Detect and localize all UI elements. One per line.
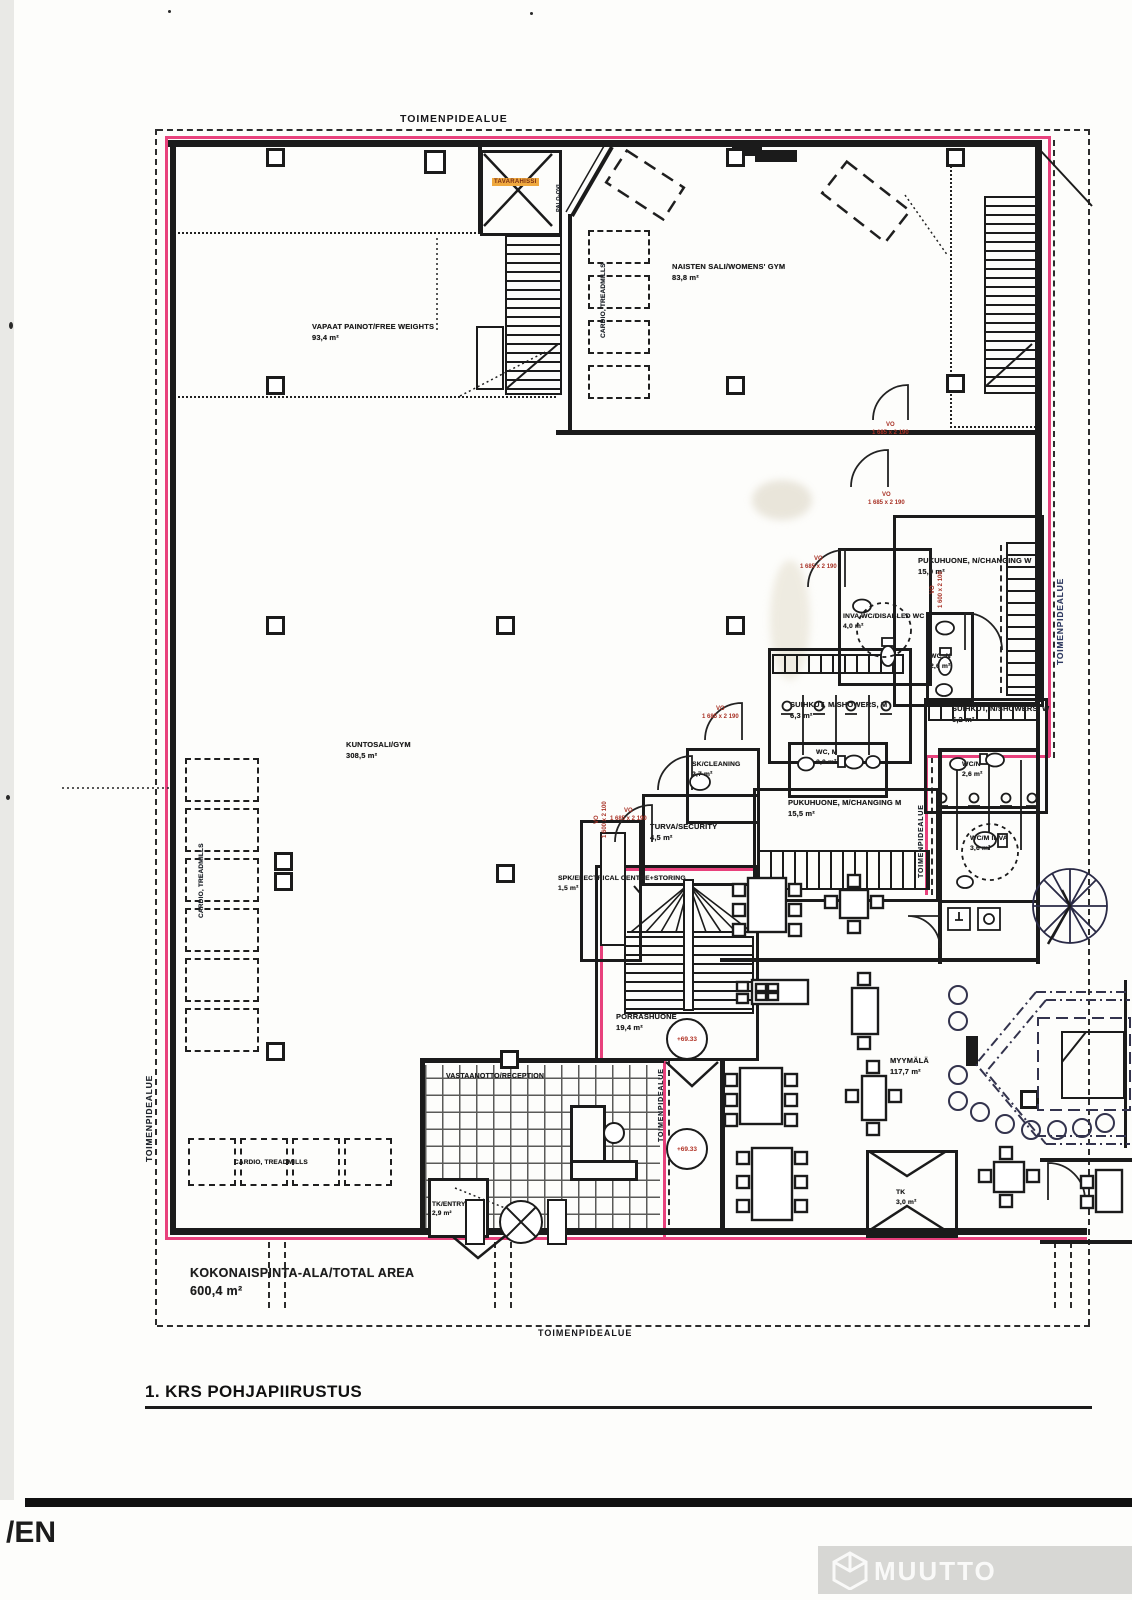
stair-top-right [984, 196, 1038, 394]
scan-left-edge [0, 0, 14, 1500]
boundary-label-mid: TOIMENPIDEALUE [918, 804, 925, 878]
column [274, 872, 293, 891]
cardio-box [588, 230, 650, 264]
grid-tick [494, 1242, 496, 1308]
door-tag: VO1 685 x 2 190 [702, 706, 739, 721]
elevator-shaft [480, 150, 562, 236]
wall-north [168, 140, 1040, 147]
total-area-note: KOKONAISPINTA-ALA/TOTAL AREA 600,4 m² [190, 1264, 414, 1300]
door-tag-vertical: VO1 600 x 2 100 [930, 571, 945, 608]
cardio-box [185, 808, 259, 852]
scanned-floorplan-page: TOIMENPIDEALUE TOIMENPIDEALUE TOIMENPIDE… [0, 0, 1132, 1600]
equipment-rotated [822, 162, 910, 243]
cardio-box [588, 275, 650, 309]
footer-left-partial-text: /EN [6, 1516, 56, 1550]
boundary-left [155, 129, 157, 1325]
boundary-right [1088, 129, 1090, 1325]
door-arc [1048, 1163, 1085, 1200]
grid-tick [510, 1242, 512, 1308]
elevation-marker: +69.33 [666, 1128, 708, 1170]
title-underline [145, 1406, 1092, 1409]
tenant-line-right [1048, 136, 1051, 757]
column [266, 1042, 285, 1061]
cardio-box [185, 908, 259, 952]
grid-tick [1054, 1242, 1056, 1308]
room-label-electrical: SPK/ELECTRICAL CENTRE+STORING1,5 m² [558, 874, 686, 894]
room-label-cleaning: SK/CLEANING2,7 m² [692, 760, 740, 780]
wall-shop-west [720, 1060, 725, 1232]
cardio-box [185, 758, 259, 802]
door-arc [851, 450, 888, 487]
watermark-strip: MUUTTO [818, 1546, 1132, 1594]
column [496, 864, 515, 883]
wall-shop-north [720, 958, 1040, 962]
room-label-reception: VASTAANOTTO/RECEPTION [446, 1072, 544, 1082]
scan-smudge [752, 480, 812, 520]
room-label-gym: KUNTOSALI/GYM308,5 m² [346, 740, 411, 762]
room-label-wc-n: WC, N2,6 m² [930, 652, 951, 672]
elevation-marker: +69.33 [666, 1018, 708, 1060]
door-tag-vertical: VO1 600 x 2 100 [594, 801, 609, 838]
room-label-wc-m: WC, M2,0 m² [816, 748, 838, 768]
footer-rule [25, 1498, 1132, 1507]
room-label-changing-m: PUKUHUONE, M/CHANGING M15,5 m² [788, 798, 901, 820]
door-arc [908, 916, 940, 948]
column [726, 616, 745, 635]
room-label-showers-m: SUIHKUT, M/SHOWERS, M6,3 m² [790, 700, 887, 722]
room-label-vestibule: TK3,0 m² [896, 1188, 917, 1208]
scan-speck [6, 795, 10, 800]
boundary-bottom [157, 1325, 1090, 1327]
diagonal-wall-inner [566, 146, 604, 212]
wall-womens-gym-south [556, 430, 1042, 435]
cardio-box [344, 1138, 392, 1186]
sink-icon [957, 876, 973, 888]
room-label-entry: TK/ENTRY2,9 m² [432, 1200, 465, 1219]
room-label-wc-n2: WC/N2,6 m² [962, 760, 983, 780]
cardio-label-left: CARDIO, TREADMILLS [198, 843, 205, 918]
wall-north-bump2 [755, 150, 797, 162]
column [726, 148, 745, 167]
fire-door-label: PALO-OVI [556, 184, 562, 212]
room-label-free-weights: VAPAAT PAINOT/FREE WEIGHTS93,4 m² [312, 322, 434, 344]
column [946, 374, 965, 393]
wall-right-vestibule-bottom [1040, 1240, 1132, 1244]
stair-main [624, 936, 754, 1014]
boundary-label-right: TOIMENPIDEALUE [1055, 578, 1065, 665]
cardio-box [185, 958, 259, 1002]
column [424, 150, 446, 174]
door-tag: VO1 685 x 2 190 [872, 422, 909, 437]
scan-speck [530, 12, 533, 15]
reception-desk-return [570, 1160, 638, 1181]
partition-womens-gym2 [950, 426, 1036, 428]
partition-free-weights [174, 232, 480, 234]
room-label-shop: MYYMÄLÄ117,7 m² [890, 1056, 929, 1078]
wall-right-edge-shop [1124, 980, 1127, 1148]
column [496, 616, 515, 635]
door-tag: VO1 685 x 2 190 [800, 556, 837, 571]
room-label-security: TURVA/SECURITY4,5 m² [650, 822, 717, 844]
boundary-right-inner [1053, 140, 1055, 758]
door-arc [873, 385, 908, 420]
partition-free-weights2 [174, 396, 556, 398]
boundary-label-bottom: TOIMENPIDEALUE [538, 1328, 632, 1338]
column [266, 148, 285, 167]
boundary-label-corridor: TOIMENPIDEALUE [658, 1068, 665, 1142]
scan-speck [9, 322, 13, 329]
tenant-line-top [165, 136, 1050, 139]
room-label-womens-gym: NAISTEN SALI/WOMENS' GYM83,8 m² [672, 262, 785, 284]
column [946, 148, 965, 167]
tenant-line-left [165, 136, 168, 1239]
elevator-label: TAVARAHISSI [492, 178, 539, 186]
boundary-label-left: TOIMENPIDEALUE [144, 1075, 154, 1162]
watermark-cube-icon [830, 1550, 870, 1590]
watermark-text: MUUTTO [874, 1556, 997, 1587]
boundary-label-top: TOIMENPIDEALUE [400, 113, 508, 125]
cardio-box [588, 320, 650, 354]
drawing-title: 1. KRS POHJAPIIRUSTUS [145, 1382, 362, 1402]
lockers-changing-m [758, 850, 930, 890]
column [266, 616, 285, 635]
cardio-box [185, 1008, 259, 1052]
column [274, 852, 293, 871]
room-label-showers-w: SUIHKUT, N/SHOWERS, W6,2 m² [952, 704, 1049, 726]
column [1020, 1090, 1039, 1109]
diagonal-wall [572, 147, 612, 216]
cardio-label-bottom: CARDIO, TREADMILLS [234, 1158, 308, 1167]
wall-reception-west [420, 1058, 425, 1234]
room-label-wc-inva: WC/M INVA3,6 m² [970, 834, 1008, 854]
wall-womens-gym-west [568, 214, 572, 433]
spiral-stair-icon [1033, 869, 1107, 944]
wall-west [170, 140, 176, 1235]
door-tag: VO1 685 x 2 190 [610, 808, 647, 823]
column [266, 376, 285, 395]
boundary-top [157, 129, 1090, 131]
cardio-box [188, 1138, 236, 1186]
cardio-box [185, 858, 259, 902]
room-label-disabled-wc: INVA WC/DISABLED WC4,0 m² [843, 612, 924, 632]
scan-speck [168, 10, 171, 13]
cardio-label-top: CARDIO, TREADMILLS [600, 263, 607, 338]
sink-icon [978, 908, 1000, 930]
cardio-box [588, 365, 650, 399]
equipment-rotated [606, 151, 684, 220]
column [500, 1050, 519, 1069]
column-filled [966, 1036, 978, 1066]
bench-showers-m [772, 654, 904, 674]
wall-right-vestibule-top [1040, 1158, 1132, 1162]
grid-tick [1070, 1242, 1072, 1308]
sink-icon [948, 908, 970, 930]
shaft-lower-box [476, 326, 504, 390]
column [726, 376, 745, 395]
wall-wc-block-3 [938, 900, 1040, 903]
stair-top-left [505, 235, 562, 395]
door-tag: VO1 685 x 2 190 [868, 492, 905, 507]
